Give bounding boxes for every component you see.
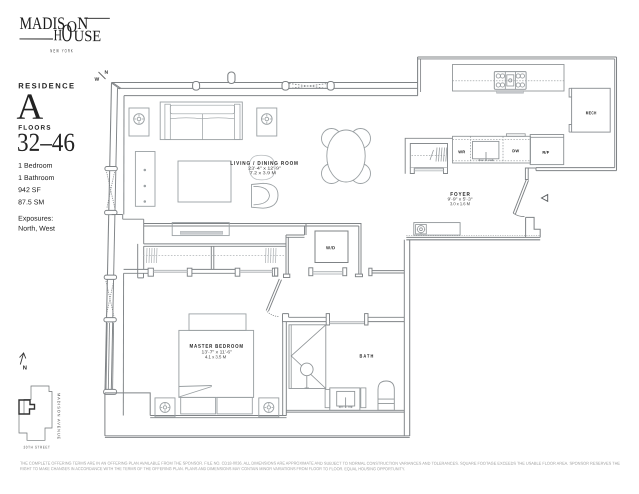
svg-text:BATH: BATH	[359, 354, 374, 360]
svg-text:Exposures:: Exposures:	[18, 216, 53, 223]
svg-text:7.2 x 3.9 M: 7.2 x 3.9 M	[250, 170, 277, 175]
svg-text:RIGHT TO MAKE CHANGES IN ACCOR: RIGHT TO MAKE CHANGES IN ACCORDANCE WITH…	[20, 466, 405, 471]
svg-text:942 SF: 942 SF	[18, 187, 41, 194]
svg-text:R/F: R/F	[542, 150, 549, 155]
svg-text:NEW YORK: NEW YORK	[50, 48, 74, 53]
svg-text:3.0 x 1.6 M: 3.0 x 1.6 M	[450, 201, 470, 206]
svg-text:1 Bedroom: 1 Bedroom	[18, 162, 52, 170]
svg-text:W: W	[94, 77, 99, 83]
svg-text:North, West: North, West	[18, 225, 55, 233]
svg-text:MADISON AVENUE: MADISON AVENUE	[57, 393, 62, 440]
svg-text:WR: WR	[458, 149, 465, 154]
svg-text:30TH STREET: 30TH STREET	[24, 445, 51, 450]
svg-text:N: N	[104, 70, 108, 76]
svg-text:4.1 x 3.5 M: 4.1 x 3.5 M	[205, 354, 227, 359]
svg-text:USE: USE	[74, 28, 102, 45]
svg-text:87.5 SM: 87.5 SM	[18, 199, 44, 206]
svg-text:1 Bathroom: 1 Bathroom	[18, 174, 54, 182]
svg-text:N: N	[23, 365, 27, 371]
svg-text:32–46: 32–46	[17, 128, 75, 157]
svg-text:W/D: W/D	[326, 245, 336, 250]
svg-text:THE COMPLETE OFFERING TERMS AR: THE COMPLETE OFFERING TERMS ARE IN AN OF…	[20, 461, 620, 466]
svg-text:DW: DW	[512, 148, 519, 153]
svg-text:A: A	[17, 87, 44, 128]
svg-text:MECH: MECH	[586, 110, 597, 115]
svg-text:O: O	[62, 20, 73, 47]
